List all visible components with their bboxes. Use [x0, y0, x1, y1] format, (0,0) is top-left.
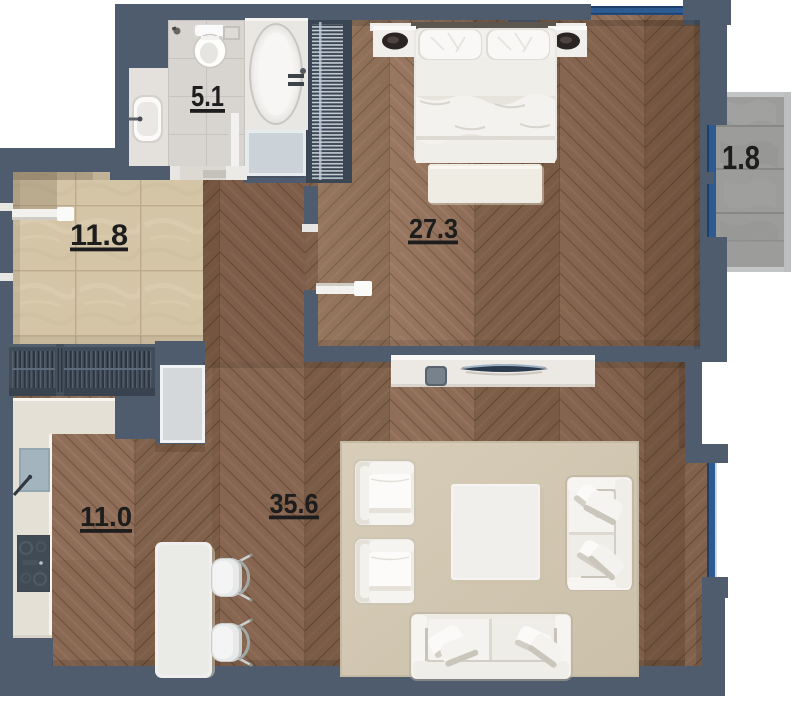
svg-text:35.6: 35.6 — [270, 488, 319, 519]
svg-text:11.8: 11.8 — [70, 219, 128, 252]
svg-text:27.3: 27.3 — [409, 213, 458, 244]
svg-text:5.1: 5.1 — [191, 81, 224, 113]
svg-text:1.8: 1.8 — [722, 139, 760, 176]
svg-text:11.0: 11.0 — [80, 501, 132, 532]
